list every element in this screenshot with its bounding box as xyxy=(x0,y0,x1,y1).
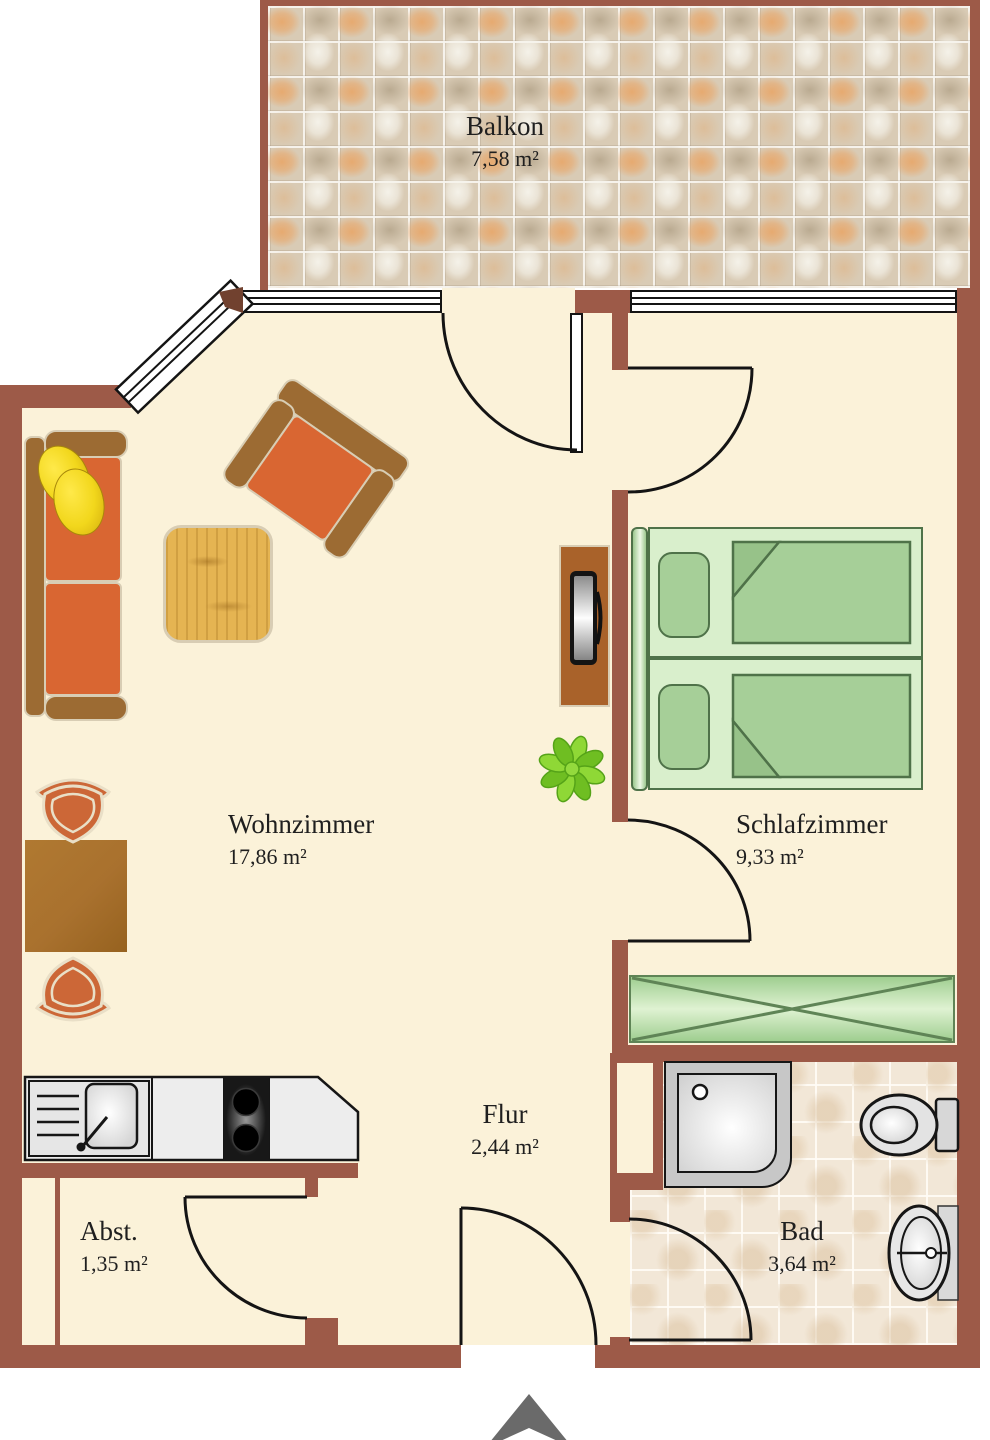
dining-chair xyxy=(37,958,109,1020)
room-name: Flur xyxy=(420,1100,590,1130)
entry-door-arc xyxy=(461,1208,596,1345)
bedroom-door-top-arc xyxy=(628,368,752,492)
room-area: 2,44 m² xyxy=(420,1135,590,1159)
room-label-abstellraum: Abst. 1,35 m² xyxy=(80,1217,148,1276)
plant xyxy=(529,726,615,812)
room-label-balkon: Balkon 7,58 m² xyxy=(385,112,625,171)
room-label-bad: Bad 3,64 m² xyxy=(712,1217,892,1276)
tv-speaker xyxy=(597,592,601,644)
room-label-wohnzimmer: Wohnzimmer 17,86 m² xyxy=(228,810,374,869)
balcony-door-arc xyxy=(443,313,577,450)
kitchenette xyxy=(25,1077,358,1160)
dining-chair xyxy=(37,780,109,842)
storage-door-arc xyxy=(185,1197,307,1318)
floor-plan: Balkon 7,58 m² Wohnzimmer 17,86 m² Schla… xyxy=(0,0,990,1440)
room-name: Bad xyxy=(712,1217,892,1247)
room-area: 7,58 m² xyxy=(385,147,625,171)
entrance-arrow-icon xyxy=(485,1394,573,1440)
bed-blanket xyxy=(733,542,910,643)
shower-drain xyxy=(693,1085,707,1099)
washbasin xyxy=(889,1206,958,1300)
sink-basin xyxy=(86,1084,137,1148)
stove-burner xyxy=(233,1125,260,1152)
room-name: Abst. xyxy=(80,1217,148,1247)
room-area: 9,33 m² xyxy=(736,845,887,869)
room-label-flur: Flur 2,44 m² xyxy=(420,1100,590,1159)
room-area: 1,35 m² xyxy=(80,1252,148,1276)
wardrobe-cross xyxy=(632,978,952,1040)
stove-burner xyxy=(233,1089,260,1116)
toilet xyxy=(861,1095,958,1155)
room-name: Wohnzimmer xyxy=(228,810,374,840)
bed-blanket xyxy=(733,675,910,777)
room-area: 17,86 m² xyxy=(228,845,374,869)
bedroom-door-bottom-arc xyxy=(628,820,750,941)
sink-faucet-base xyxy=(77,1143,86,1152)
room-label-schlafzimmer: Schlafzimmer 9,33 m² xyxy=(736,810,887,869)
room-area: 3,64 m² xyxy=(712,1252,892,1276)
room-name: Schlafzimmer xyxy=(736,810,887,840)
room-name: Balkon xyxy=(385,112,625,142)
